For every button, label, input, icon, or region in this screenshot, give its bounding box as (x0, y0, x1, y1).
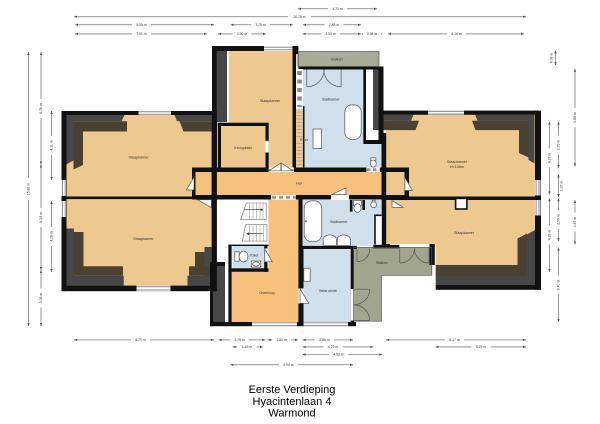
svg-text:5.29 m: 5.29 m (476, 345, 487, 349)
svg-text:8.17 m: 8.17 m (449, 338, 460, 342)
svg-text:4.08 m: 4.08 m (549, 53, 553, 64)
svg-text:3.50 m: 3.50 m (325, 32, 336, 36)
svg-text:2.75 m: 2.75 m (234, 338, 245, 342)
svg-text:5.86 m: 5.86 m (573, 112, 577, 123)
svg-text:8.16 m: 8.16 m (451, 32, 462, 36)
svg-text:6.34 m: 6.34 m (39, 212, 43, 223)
svg-text:Slaapkamer: Slaapkamer (454, 231, 475, 235)
svg-text:4.73 m: 4.73 m (332, 7, 343, 11)
svg-text:4.37 m: 4.37 m (548, 153, 552, 164)
svg-text:0.98 m: 0.98 m (367, 32, 378, 36)
svg-text:Badkamer: Badkamer (322, 98, 340, 102)
svg-text:3.08 m: 3.08 m (39, 293, 43, 304)
svg-text:1.63 m: 1.63 m (242, 345, 253, 349)
svg-text:Inloopkast: Inloopkast (234, 146, 252, 150)
svg-text:2.79 m: 2.79 m (557, 140, 561, 151)
svg-text:4.29 m: 4.29 m (328, 345, 339, 349)
svg-text:Wasruimte: Wasruimte (319, 289, 337, 293)
svg-text:Eerste Verdieping: Eerste Verdieping (249, 384, 336, 396)
svg-text:Toilet: Toilet (250, 254, 260, 258)
svg-text:4.82 m: 4.82 m (333, 353, 344, 357)
svg-text:Warmond: Warmond (268, 408, 315, 420)
svg-text:H=136m: H=136m (450, 165, 464, 169)
svg-text:8.70 m: 8.70 m (135, 338, 146, 342)
svg-text:Overloop: Overloop (259, 291, 274, 295)
svg-text:3.75 m: 3.75 m (255, 23, 266, 27)
svg-text:1.81 m: 1.81 m (276, 338, 287, 342)
svg-text:Slaapkamer: Slaapkamer (133, 237, 154, 241)
svg-text:6.40 m: 6.40 m (557, 280, 561, 291)
svg-text:2.67 m: 2.67 m (573, 217, 577, 228)
svg-text:Slaapkamer: Slaapkamer (447, 160, 468, 164)
svg-text:4.11 m: 4.11 m (50, 140, 54, 150)
svg-text:Balkon: Balkon (376, 261, 388, 265)
svg-text:4.28 m: 4.28 m (548, 230, 552, 241)
svg-text:Slaapkamer: Slaapkamer (260, 99, 281, 103)
svg-text:26.76 m: 26.76 m (293, 15, 305, 19)
svg-text:6.94 m: 6.94 m (283, 363, 294, 367)
svg-text:4.28 m: 4.28 m (50, 231, 54, 242)
svg-text:2.88 m: 2.88 m (329, 23, 340, 27)
svg-text:Hyacintenlaan 4: Hyacintenlaan 4 (253, 396, 332, 408)
svg-text:1.37 m: 1.37 m (560, 181, 564, 192)
svg-text:2.59 m: 2.59 m (557, 214, 561, 225)
svg-text:Balkon: Balkon (331, 58, 343, 62)
svg-text:Slaapkamer: Slaapkamer (128, 156, 149, 160)
svg-text:6.76 m: 6.76 m (39, 103, 43, 114)
svg-text:Kast: Kast (300, 138, 309, 142)
svg-text:Badkamer: Badkamer (330, 220, 348, 224)
svg-text:2.86 m: 2.86 m (319, 338, 330, 342)
svg-text:15.83 m: 15.83 m (27, 183, 31, 195)
svg-text:8.55 m: 8.55 m (136, 23, 147, 27)
svg-text:2.90 m: 2.90 m (237, 32, 248, 36)
svg-text:7.91 m: 7.91 m (136, 32, 147, 36)
svg-text:Hal: Hal (296, 182, 302, 186)
